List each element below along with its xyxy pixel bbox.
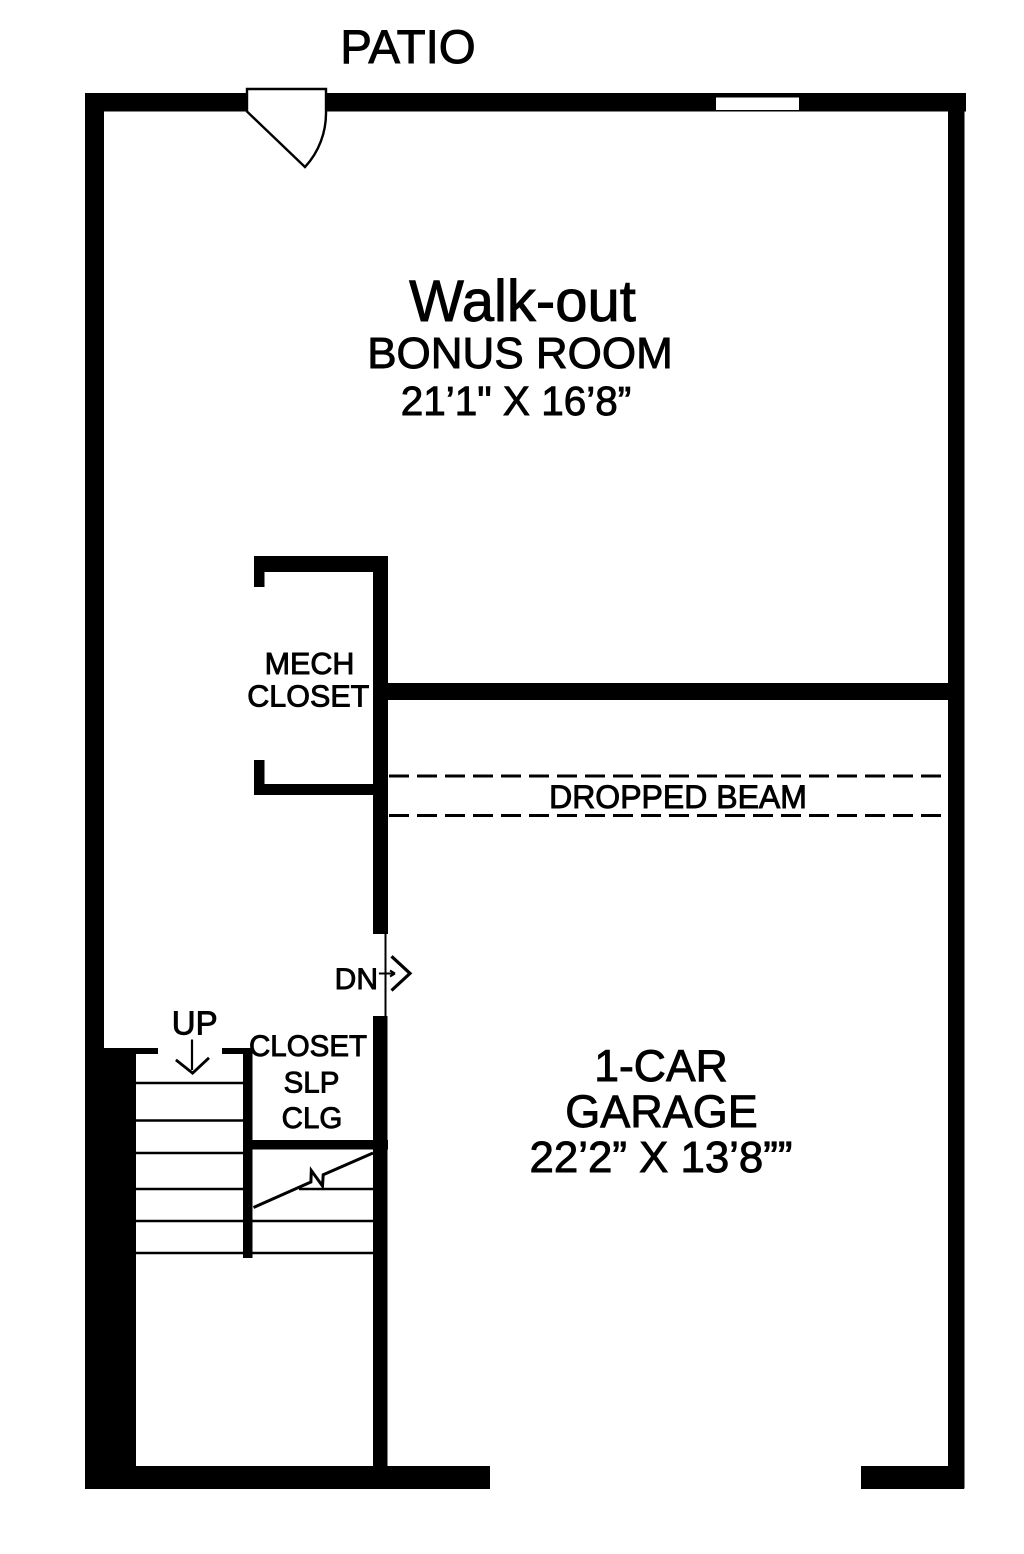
svg-text:1-CAR: 1-CAR (594, 1042, 728, 1091)
svg-text:21’1" X 16’8”: 21’1" X 16’8” (401, 378, 632, 424)
svg-text:CLOSET: CLOSET (249, 1030, 367, 1063)
svg-text:Walk-out: Walk-out (409, 269, 636, 334)
svg-text:CLG: CLG (282, 1102, 343, 1135)
svg-text:SLP: SLP (284, 1067, 340, 1100)
svg-text:DN: DN (335, 963, 378, 996)
svg-text:PATIO: PATIO (340, 21, 475, 74)
svg-text:GARAGE: GARAGE (565, 1086, 758, 1137)
svg-text:MECH: MECH (265, 647, 355, 681)
svg-text:UP: UP (172, 1005, 218, 1042)
svg-text:BONUS ROOM: BONUS ROOM (367, 329, 673, 378)
svg-text:DROPPED BEAM: DROPPED BEAM (549, 779, 807, 815)
svg-text:22’2” X 13’8””: 22’2” X 13’8”” (530, 1133, 793, 1182)
svg-text:CLOSET: CLOSET (247, 680, 369, 714)
